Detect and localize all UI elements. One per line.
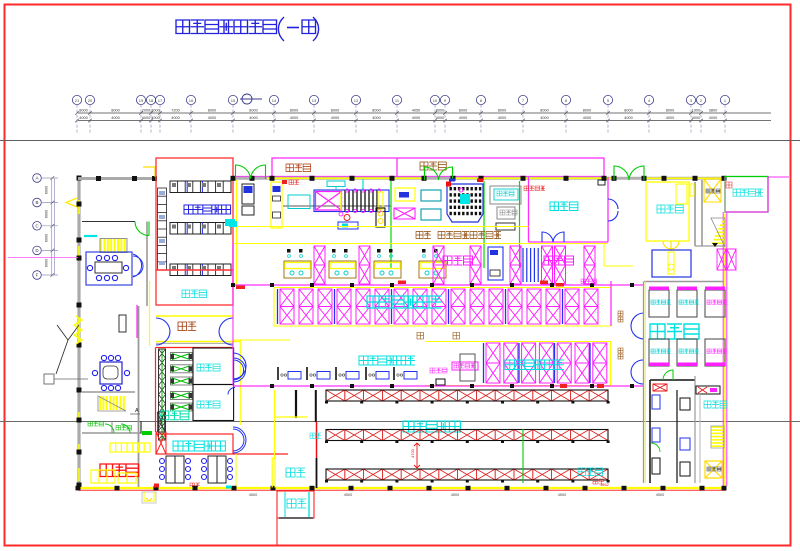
svg-text:4000: 4000 [498,116,506,120]
svg-text:4000: 4000 [540,116,548,120]
svg-text:21: 21 [75,98,80,103]
svg-text:3000: 3000 [151,109,159,113]
svg-text:B: B [35,200,38,205]
svg-text:4000: 4000 [412,116,420,120]
svg-text:4500: 4500 [451,493,459,497]
svg-text:8000: 8000 [436,109,444,113]
svg-text:F: F [36,273,39,278]
svg-text:4000: 4000 [290,116,298,120]
svg-text:13: 13 [312,98,317,103]
svg-text:6000: 6000 [45,186,49,194]
svg-text:4050: 4050 [412,109,420,113]
svg-text:8000: 8000 [666,109,674,113]
svg-text:3: 3 [690,98,693,103]
svg-text:8000: 8000 [498,109,506,113]
svg-text:1900: 1900 [692,109,700,113]
svg-text:8000: 8000 [331,109,339,113]
svg-text:A: A [35,176,38,181]
svg-text:4000: 4000 [709,116,717,120]
svg-text:9: 9 [444,98,447,103]
svg-text:15: 15 [231,98,236,103]
svg-text:4000: 4000 [624,116,632,120]
svg-text:8000: 8000 [583,109,591,113]
svg-text:4000: 4000 [583,116,591,120]
svg-text:8000: 8000 [111,109,119,113]
svg-text:8000: 8000 [540,109,548,113]
svg-text:D: D [35,248,39,253]
svg-text:4500: 4500 [249,493,257,497]
svg-text:8000: 8000 [372,109,380,113]
svg-text:4000: 4000 [151,116,159,120]
svg-text:8000: 8000 [459,109,467,113]
svg-text:4500: 4500 [558,493,566,497]
svg-text:4000: 4000 [208,116,216,120]
svg-text:4000: 4000 [79,116,87,120]
svg-text:7200: 7200 [171,109,179,113]
svg-text:5: 5 [607,98,610,103]
svg-text:1: 1 [724,98,727,103]
svg-text:14: 14 [272,98,277,103]
svg-text:17: 17 [158,98,163,103]
svg-text:4: 4 [648,98,651,103]
svg-text:6000: 6000 [45,234,49,242]
svg-text:4000: 4000 [459,116,467,120]
svg-text:20: 20 [88,98,93,103]
svg-text:4000: 4000 [249,116,257,120]
svg-text:4000: 4000 [436,116,444,120]
svg-text:19: 19 [139,98,144,103]
svg-text:16: 16 [189,98,194,103]
svg-text:4000: 4000 [142,116,150,120]
svg-text:12: 12 [354,98,359,103]
svg-text:8000: 8000 [290,109,298,113]
svg-text:4000: 4000 [331,116,339,120]
svg-text:8000: 8000 [249,109,257,113]
svg-text:4000: 4000 [372,116,380,120]
svg-text:4000: 4000 [111,116,119,120]
svg-text:8000: 8000 [208,109,216,113]
svg-text:18: 18 [149,98,154,103]
svg-text:4000: 4000 [666,116,674,120]
svg-text:2: 2 [700,98,703,103]
svg-text:6000: 6000 [45,259,49,267]
svg-text:A: A [135,408,139,414]
svg-text:4700: 4700 [410,448,415,458]
svg-text:4500: 4500 [656,493,664,497]
svg-text:8000: 8000 [79,109,87,113]
svg-text:4000: 4000 [692,116,700,120]
svg-text:8: 8 [480,98,483,103]
svg-text:10: 10 [433,98,438,103]
svg-text:1#62: 1#62 [600,482,610,487]
svg-text:6000: 6000 [45,210,49,218]
svg-text:8000: 8000 [624,109,632,113]
svg-text:2000: 2000 [142,109,150,113]
svg-text:3800: 3800 [709,109,717,113]
svg-text:6: 6 [565,98,568,103]
svg-text:4500: 4500 [344,493,352,497]
svg-text:4000: 4000 [171,116,179,120]
svg-text:C: C [35,223,39,228]
svg-text:11: 11 [395,98,400,103]
svg-text:7: 7 [522,98,525,103]
